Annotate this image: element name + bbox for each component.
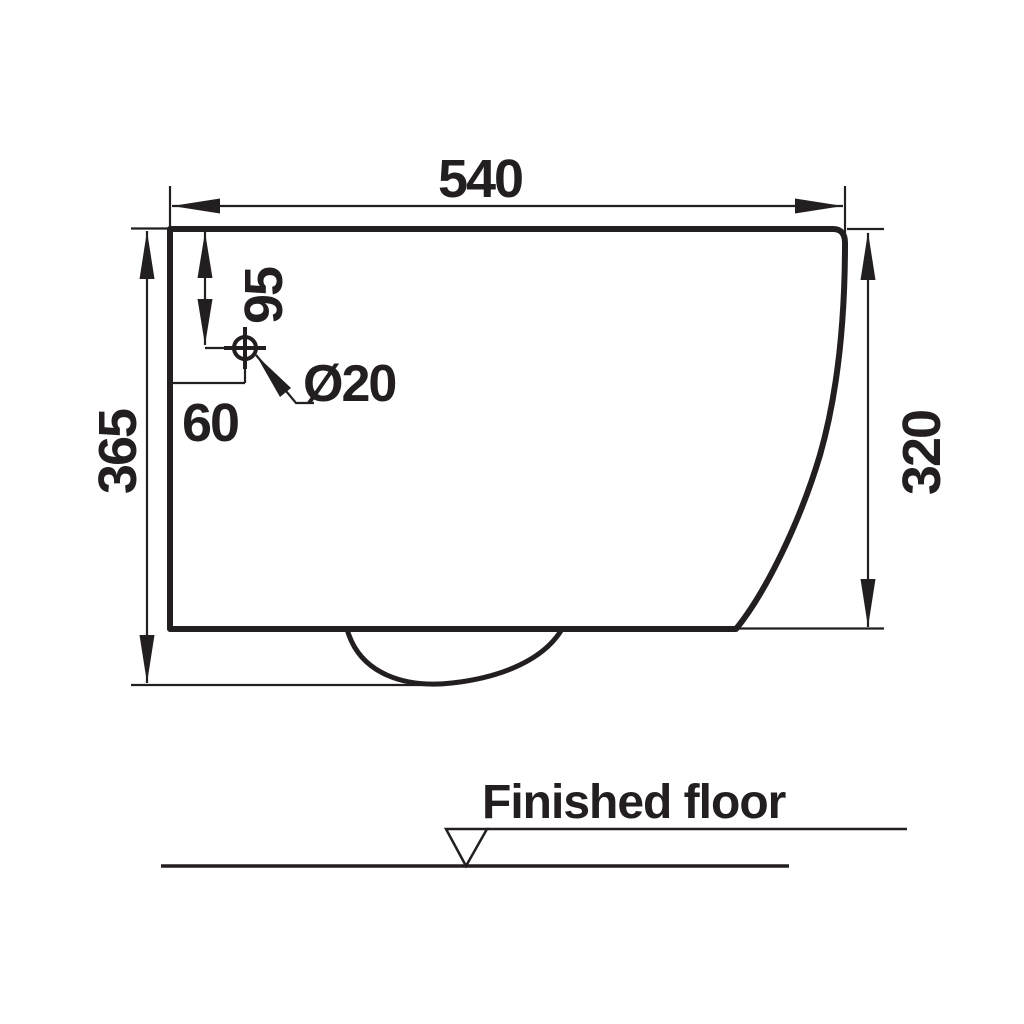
leader-arrowhead [256, 355, 291, 397]
floor-label: Finished floor [482, 776, 786, 829]
arrowhead-bottom [140, 635, 155, 683]
floor-reference: Finished floor [161, 776, 907, 866]
dim-365-label: 365 [88, 409, 148, 494]
level-symbol-icon [446, 829, 487, 866]
dim-540-label: 540 [438, 149, 522, 209]
technical-drawing-page: 540 365 320 95 [0, 0, 1024, 1024]
arrowhead-top [198, 232, 213, 278]
trap-curve [347, 629, 562, 684]
arrowhead-bottom [861, 579, 876, 627]
hole-marker [224, 327, 266, 369]
hole-diameter-label: Ø20 [303, 355, 395, 413]
arrowhead-top [140, 231, 155, 279]
arrowhead-left [172, 199, 220, 214]
hole-diameter-callout: Ø20 [256, 355, 395, 413]
dimension-hole-side-offset: 60 [170, 369, 245, 453]
arrowhead-right [795, 199, 843, 214]
arrowhead-bottom [198, 299, 213, 345]
dim-60-label: 60 [182, 393, 238, 453]
arrowhead-top [861, 232, 876, 280]
dim-95-label: 95 [234, 267, 294, 324]
toilet-side-elevation-drawing: 540 365 320 95 [0, 0, 1024, 1024]
dimension-overall-width: 540 [170, 149, 845, 233]
dim-320-label: 320 [892, 411, 952, 495]
